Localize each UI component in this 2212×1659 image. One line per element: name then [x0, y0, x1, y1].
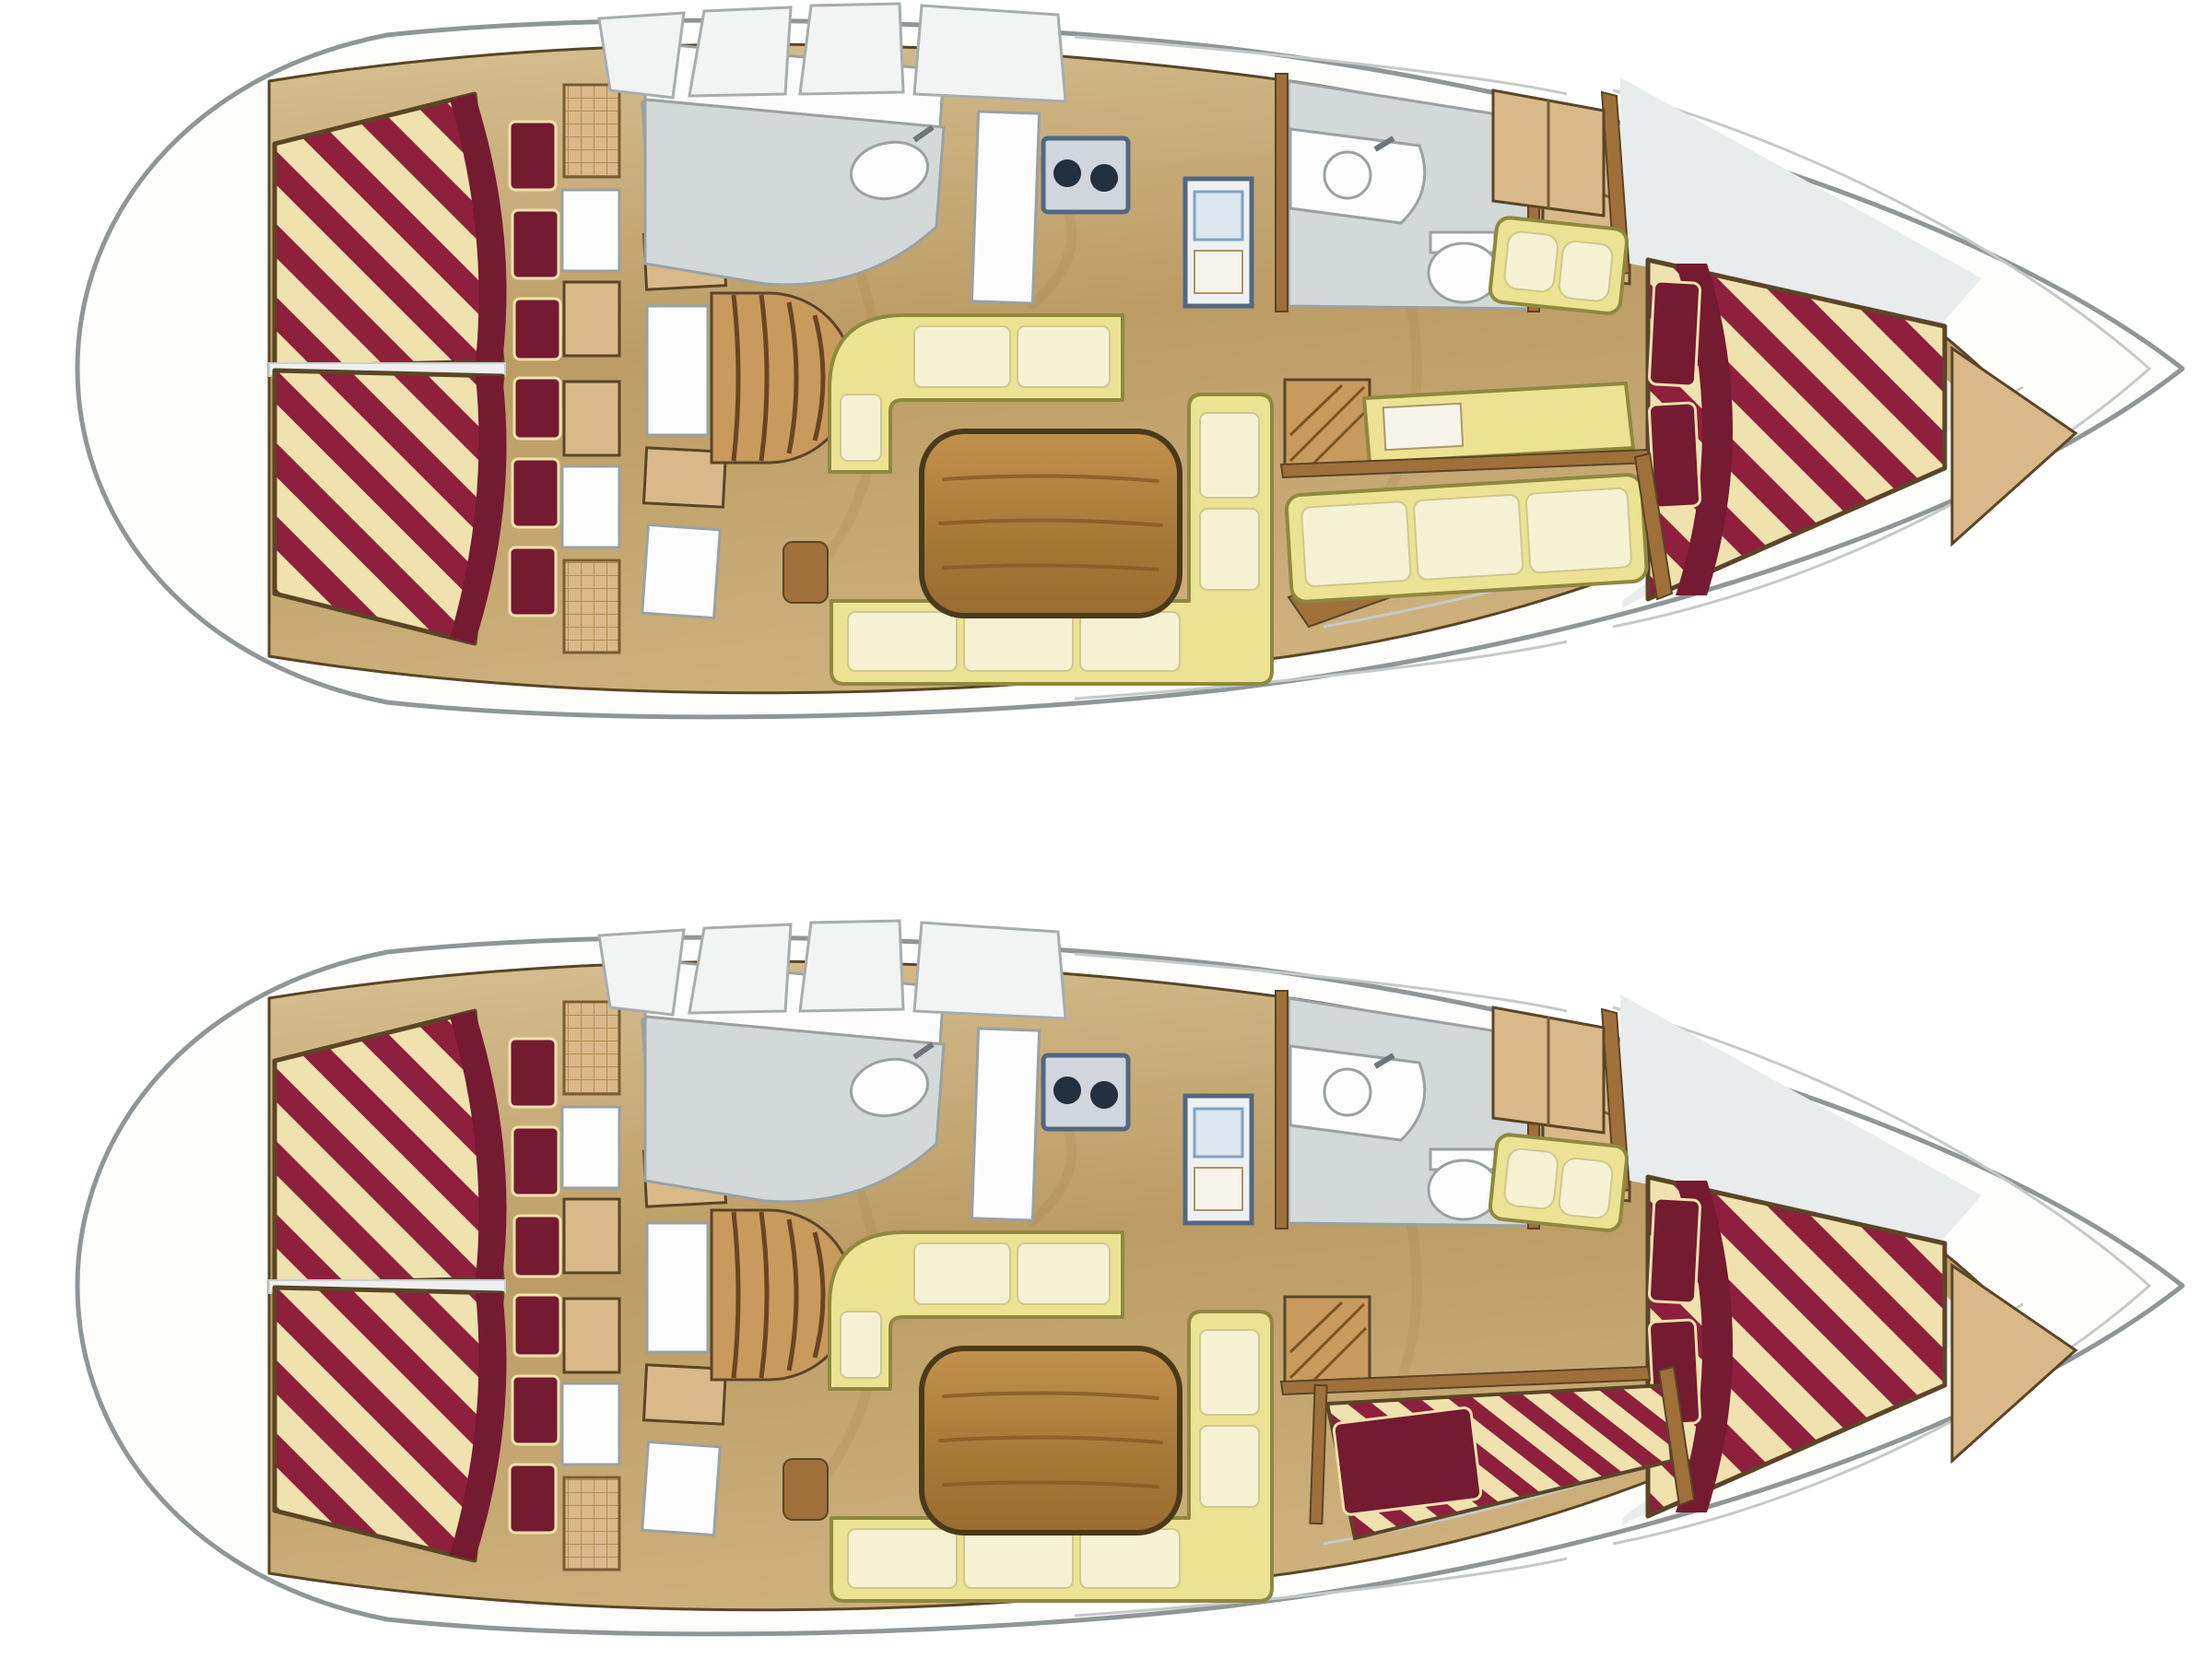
floorplan-top	[77, 4, 2183, 717]
floorplan-bottom	[77, 921, 2183, 1634]
floorplan-sheet	[0, 0, 2212, 1659]
floorplans-canvas	[0, 0, 2212, 1659]
